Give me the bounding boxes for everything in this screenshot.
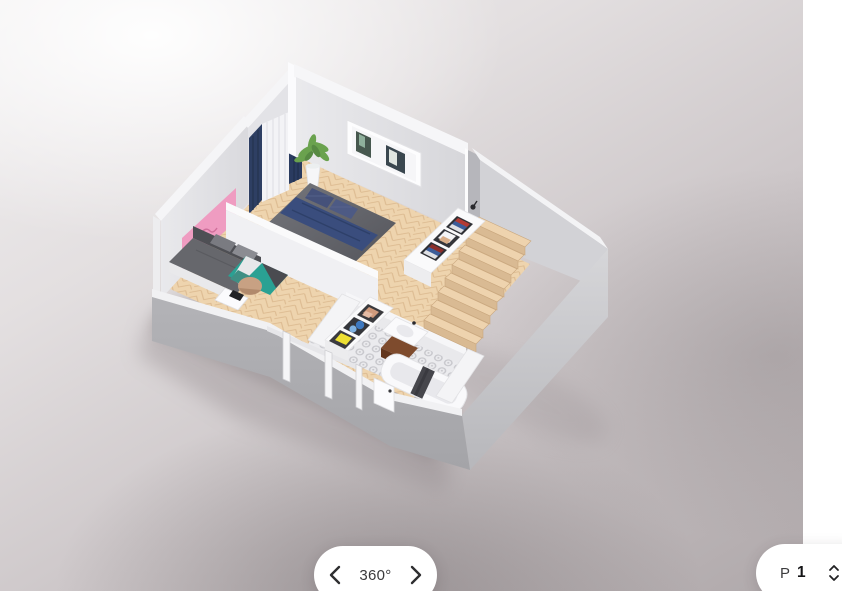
viewer-stage: 360° P 1 bbox=[0, 0, 842, 591]
rotation-label: 360° bbox=[359, 567, 391, 584]
rotate-left-button[interactable] bbox=[324, 561, 345, 589]
floorplan-3d-render bbox=[0, 0, 842, 591]
up-down-chevrons-icon bbox=[827, 563, 841, 583]
rotation-control: 360° bbox=[314, 546, 437, 591]
chevron-right-icon bbox=[410, 565, 423, 585]
floorplan-3d-view[interactable] bbox=[0, 0, 842, 591]
chevron-left-icon bbox=[328, 565, 341, 585]
floor-selector[interactable]: P 1 bbox=[756, 544, 842, 591]
floor-stepper-button[interactable] bbox=[825, 561, 842, 585]
rotate-right-button[interactable] bbox=[406, 561, 427, 589]
floor-prefix: P bbox=[780, 565, 790, 582]
floor-value: 1 bbox=[797, 564, 806, 582]
